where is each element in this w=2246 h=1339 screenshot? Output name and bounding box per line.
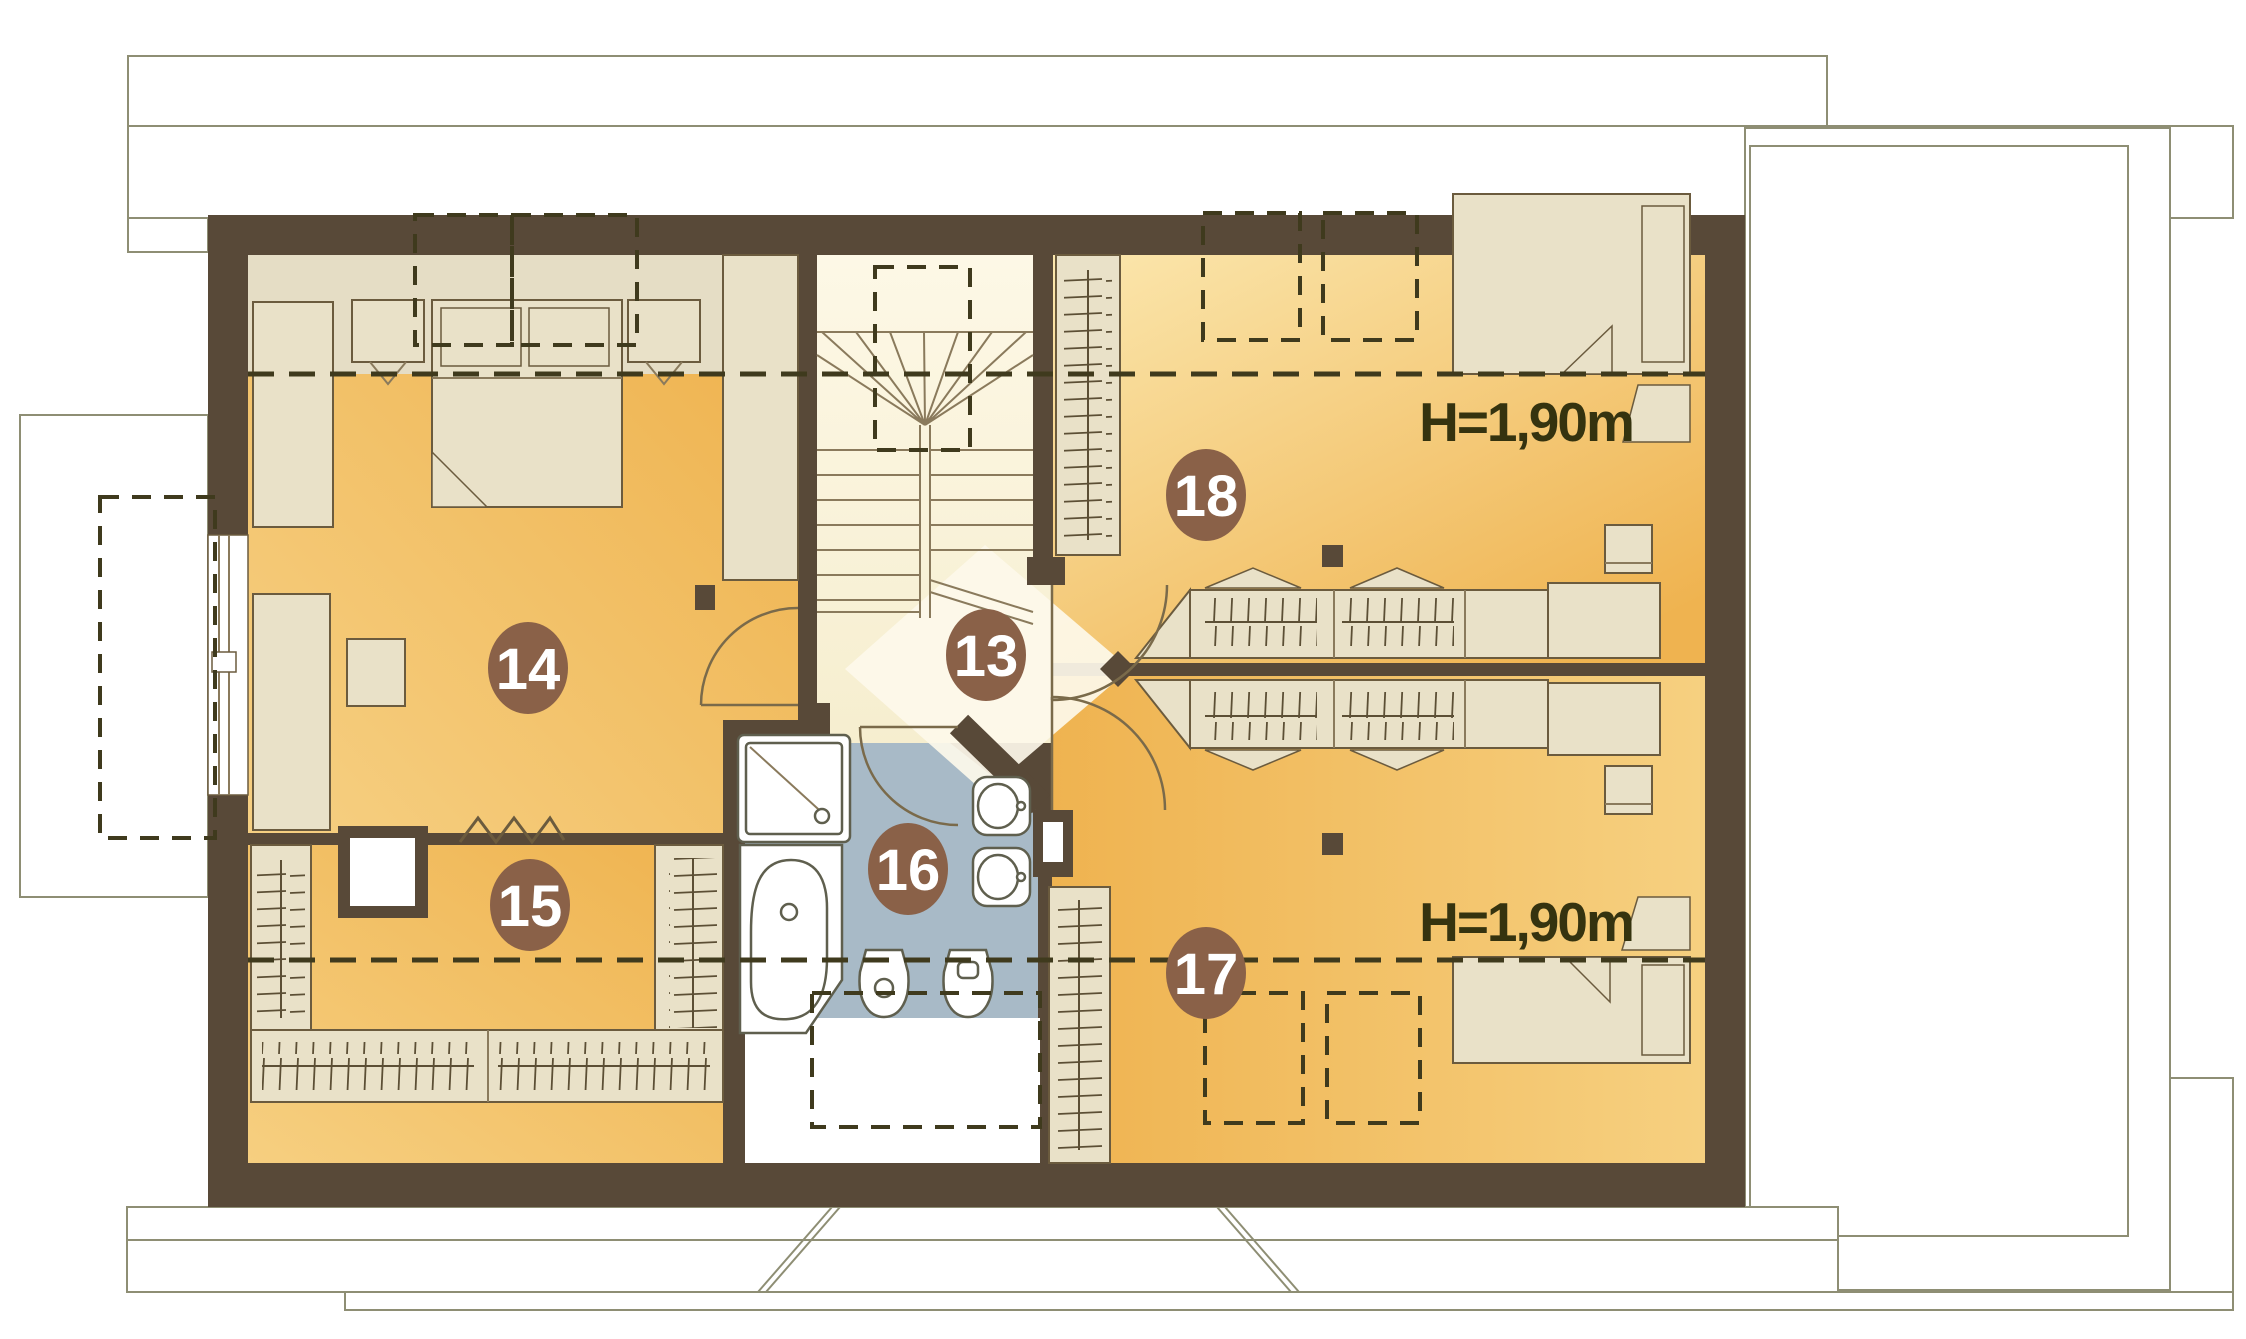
- roof-notch-bottom-right: [2170, 1078, 2233, 1308]
- stool-icon: [1605, 525, 1652, 573]
- washbasin-tap: [1017, 802, 1025, 810]
- room-16-number: 16: [876, 838, 941, 903]
- wall-14-15-c: [565, 833, 723, 845]
- duct-shaft-bathroom: [1043, 822, 1063, 862]
- wardrobe-icon: [253, 302, 333, 527]
- floor-plan-page: 14 15 13 16 18 17 H=1,90m H=1,90m: [0, 0, 2246, 1339]
- roof-band-bottom-1: [127, 1207, 1838, 1240]
- floor-plan-drawing: 14 15 13 16 18 17 H=1,90m H=1,90m: [0, 0, 2246, 1339]
- stool-icon: [347, 639, 405, 706]
- bathtub-drain: [781, 904, 797, 920]
- bathroom-low-white-zone: [745, 1018, 1040, 1163]
- roof-rect-right-inner: [1750, 146, 2128, 1236]
- post-room-18: [1322, 545, 1343, 567]
- wall-hall-west-upper: [798, 255, 817, 608]
- wall-hall-east: [1033, 255, 1053, 557]
- wall-14-15-a: [248, 833, 338, 845]
- wall-hall-east-stub: [1027, 557, 1065, 585]
- post-room-14: [695, 585, 715, 610]
- pillow-right-icon: [529, 308, 609, 366]
- closet-icon: [723, 255, 798, 580]
- cabinet-icon: [1548, 683, 1660, 755]
- roof-band-bottom-3: [345, 1292, 2233, 1310]
- cabinet-icon: [1548, 583, 1660, 658]
- wall-17-18-central: [1118, 663, 1705, 676]
- room-13-number: 13: [954, 624, 1019, 689]
- room-15-number: 15: [498, 874, 563, 939]
- shower-drain: [815, 809, 829, 823]
- balcony-outline-left: [20, 415, 208, 897]
- height-label-south: H=1,90m: [1419, 891, 1633, 953]
- wall-14-15-b: [428, 833, 458, 845]
- bathtub-basin: [751, 860, 827, 1019]
- post-room-17: [1322, 833, 1343, 855]
- height-label-north: H=1,90m: [1419, 391, 1633, 453]
- pillow-icon: [1642, 206, 1684, 362]
- washbasin-bowl: [978, 855, 1018, 899]
- room-17-number: 17: [1174, 942, 1239, 1007]
- pillow-icon: [1642, 965, 1684, 1055]
- washbasin-bowl: [978, 784, 1018, 828]
- dresser-icon: [253, 594, 330, 830]
- room-14-number: 14: [496, 637, 561, 702]
- washbasin-tap: [1017, 873, 1025, 881]
- roof-notch-left: [128, 218, 208, 252]
- room-18-number: 18: [1174, 464, 1239, 529]
- chimney-shaft-15: [350, 838, 415, 906]
- roof-band-bottom-2: [127, 1240, 1838, 1292]
- pillow-left-icon: [441, 308, 521, 366]
- stool-icon: [1605, 766, 1652, 814]
- roof-band-top: [128, 56, 1827, 126]
- toilet-bowl: [958, 962, 978, 978]
- room-15-floor: [248, 845, 723, 1163]
